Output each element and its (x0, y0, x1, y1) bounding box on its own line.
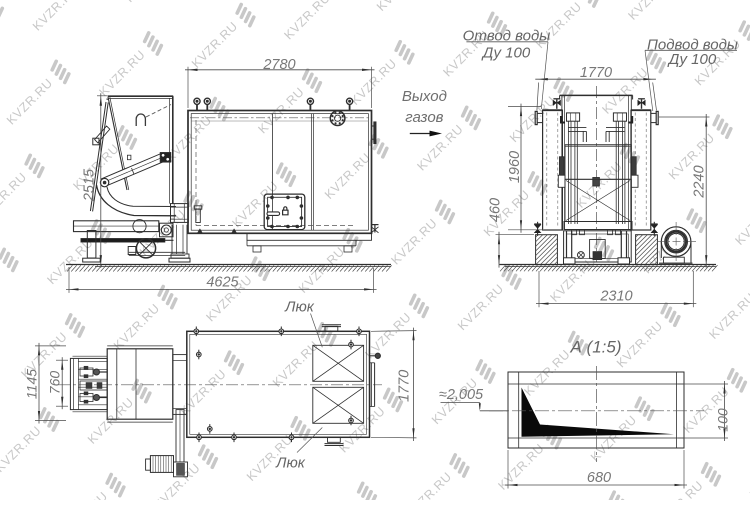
svg-text:1145: 1145 (24, 369, 40, 399)
svg-text:4625: 4625 (206, 274, 239, 290)
svg-text:460: 460 (488, 198, 504, 222)
svg-text:Ду 100: Ду 100 (481, 45, 531, 62)
svg-text:Ду 100: Ду 100 (667, 51, 717, 68)
svg-text:2240: 2240 (692, 165, 708, 198)
svg-text:Люк: Люк (275, 455, 306, 472)
svg-text:2780: 2780 (262, 57, 295, 73)
svg-text:≈2,005: ≈2,005 (439, 387, 484, 403)
svg-text:газов: газов (405, 109, 443, 126)
svg-text:1770: 1770 (397, 370, 413, 402)
svg-text:100: 100 (715, 408, 731, 432)
svg-text:1960: 1960 (507, 151, 523, 183)
svg-text:2310: 2310 (599, 289, 632, 305)
svg-text:680: 680 (587, 470, 611, 486)
svg-text:760: 760 (47, 371, 63, 395)
svg-text:А (1:5): А (1:5) (569, 338, 621, 357)
svg-text:1770: 1770 (580, 65, 612, 81)
svg-text:Люк: Люк (284, 299, 315, 316)
svg-text:2515: 2515 (82, 168, 98, 202)
svg-text:Выход: Выход (402, 88, 447, 105)
